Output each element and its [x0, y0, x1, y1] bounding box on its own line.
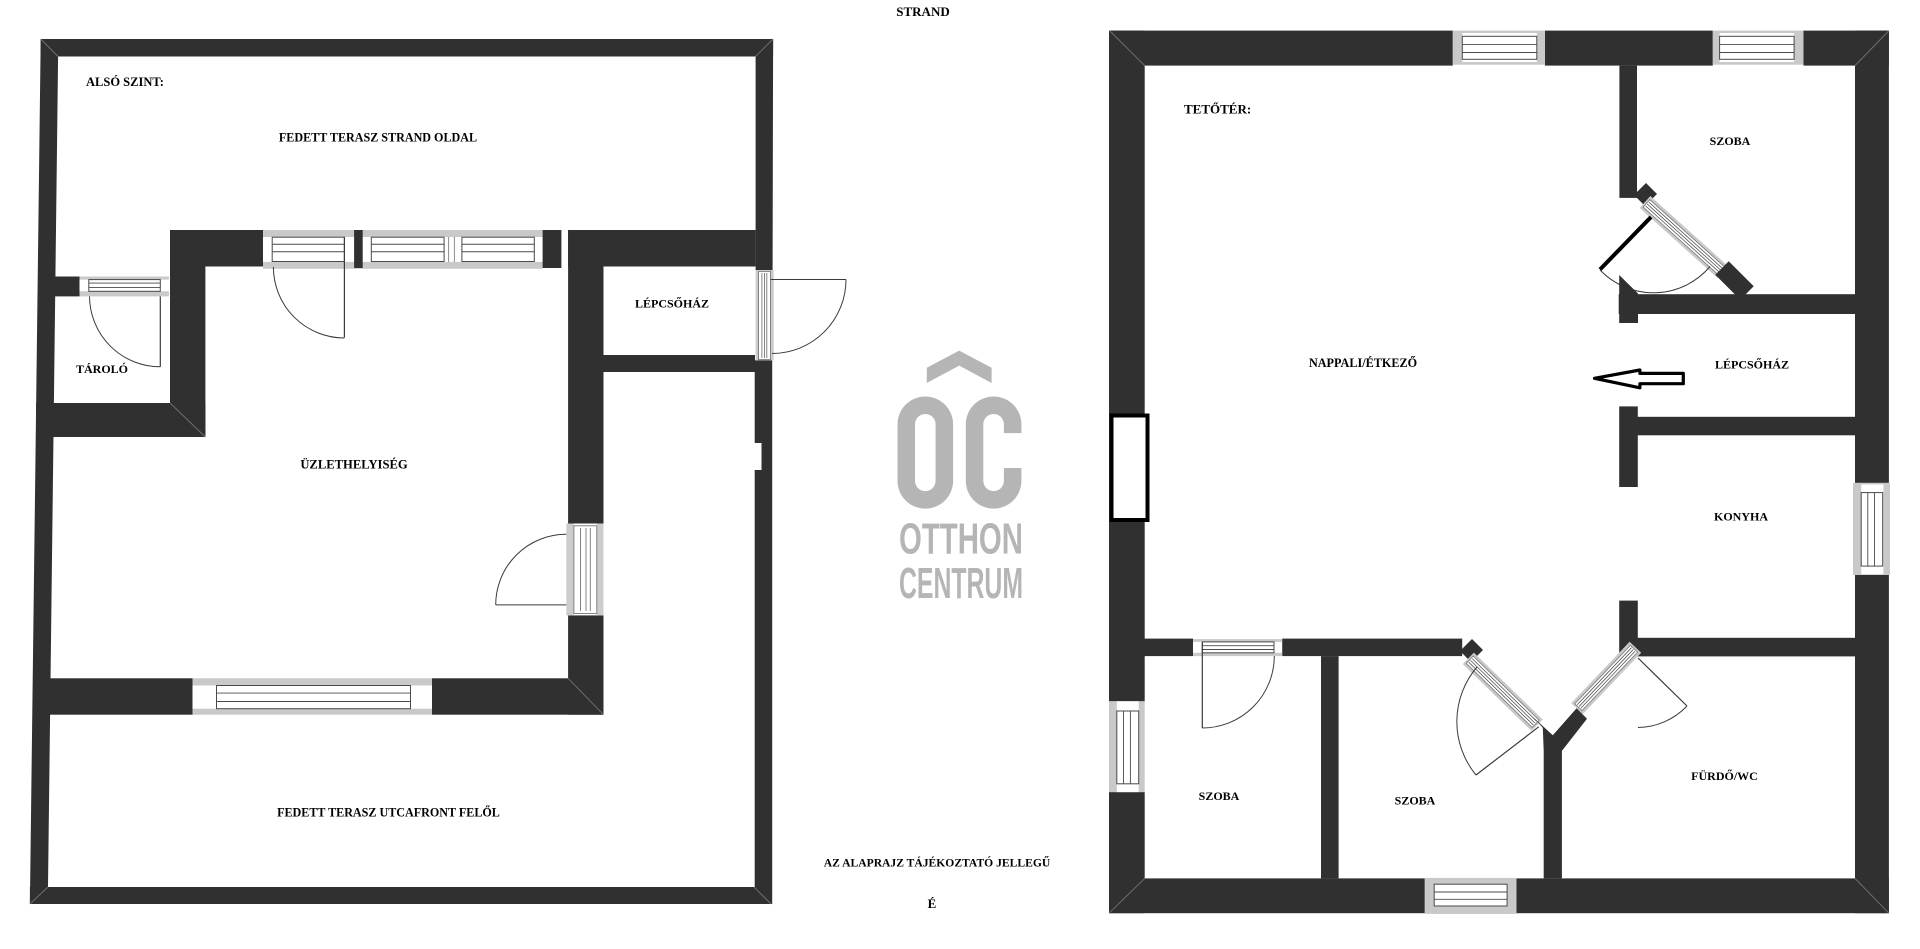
svg-text:FÜRDŐ/WC: FÜRDŐ/WC: [1691, 768, 1758, 783]
svg-text:KONYHA: KONYHA: [1714, 510, 1768, 524]
svg-text:NAPPALI/ÉTKEZŐ: NAPPALI/ÉTKEZŐ: [1309, 355, 1417, 370]
svg-text:TÁROLÓ: TÁROLÓ: [76, 362, 128, 376]
svg-text:FEDETT TERASZ UTCAFRONT FELŐL: FEDETT TERASZ UTCAFRONT FELŐL: [277, 805, 500, 820]
svg-text:ÜZLETHELYISÉG: ÜZLETHELYISÉG: [300, 458, 408, 472]
svg-text:FEDETT TERASZ STRAND OLDAL: FEDETT TERASZ STRAND OLDAL: [279, 131, 477, 145]
svg-text:ALSÓ SZINT:: ALSÓ SZINT:: [86, 75, 164, 89]
svg-text:SZOBA: SZOBA: [1199, 789, 1240, 803]
svg-text:LÉPCSŐHÁZ: LÉPCSŐHÁZ: [1715, 357, 1789, 372]
svg-text:SZOBA: SZOBA: [1395, 794, 1436, 808]
svg-text:SZOBA: SZOBA: [1710, 134, 1751, 148]
svg-text:AZ ALAPRAJZ TÁJÉKOZTATÓ JELLEG: AZ ALAPRAJZ TÁJÉKOZTATÓ JELLEGŰ: [824, 855, 1051, 870]
svg-text:TETŐTÉR:: TETŐTÉR:: [1184, 102, 1251, 117]
svg-text:É: É: [928, 896, 937, 911]
svg-text:OTTHON: OTTHON: [899, 516, 1023, 564]
svg-text:CENTRUM: CENTRUM: [899, 560, 1023, 608]
svg-text:LÉPCSŐHÁZ: LÉPCSŐHÁZ: [635, 296, 709, 311]
svg-text:STRAND: STRAND: [896, 4, 949, 19]
